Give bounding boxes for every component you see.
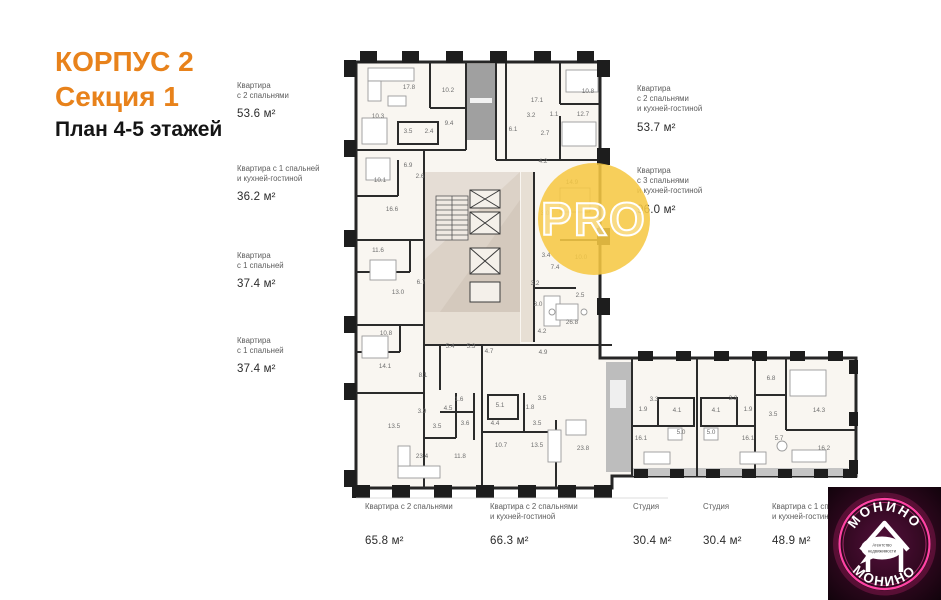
apt-area: 30.4 м²	[703, 535, 742, 547]
room-area-label: 14.1	[379, 363, 392, 370]
column-block	[594, 485, 612, 498]
room-area-label: 4.2	[539, 158, 548, 165]
room-area-label: 6.1	[509, 126, 518, 133]
room-area-label: 6.9	[404, 162, 413, 169]
room-area-label: 1.8	[526, 404, 535, 411]
room-area-label: 4.2	[538, 328, 547, 335]
apt-area: 48.9 м²	[772, 535, 811, 547]
room-area-label: 2.6	[416, 173, 425, 180]
apt-label-left-1: Квартира с 2 спальнями 53.6 м²	[237, 81, 345, 101]
apt-area: 53.6 м²	[237, 108, 276, 120]
column-block	[638, 351, 653, 361]
column-block	[434, 485, 452, 498]
room-area-label: 6.7	[417, 279, 426, 286]
room-area-label: 6.8	[767, 375, 776, 382]
column-block	[849, 360, 858, 374]
room-area-label: 3.4	[542, 252, 551, 259]
room-area-label: 2.4	[425, 128, 434, 135]
room-area-label: 26.8	[566, 319, 579, 326]
column-block	[714, 351, 729, 361]
section-title: Секция 1	[55, 79, 222, 114]
column-block	[360, 51, 377, 63]
column-block	[790, 351, 805, 361]
column-block	[752, 351, 767, 361]
room-area-label: 3.5	[533, 420, 542, 427]
apt-area: 36.2 м²	[237, 191, 276, 203]
apt-label-left-3: Квартира с 1 спальней 37.4 м²	[237, 251, 345, 271]
apt-area: 37.4 м²	[237, 363, 276, 375]
room-area-label: 5.3	[467, 343, 476, 350]
room-area-label: 4.7	[485, 348, 494, 355]
room-area-label: 10.7	[495, 442, 508, 449]
room-area-label: 13.0	[392, 289, 405, 296]
column-block	[344, 230, 356, 247]
room-area-label: 1.9	[639, 406, 648, 413]
room-area-label: 14.3	[813, 407, 826, 414]
column-block	[392, 485, 410, 498]
room-area-label: 17.8	[403, 84, 416, 91]
column-block	[849, 412, 858, 426]
column-block	[742, 469, 756, 478]
room-area-label: 3.6	[461, 420, 470, 427]
room-area-label: 3.5	[769, 411, 778, 418]
apt-name: Квартира с 2 спальнями	[237, 81, 345, 101]
column-block	[849, 460, 858, 474]
room-area-label: 4.9	[539, 349, 548, 356]
room-area-label: 5.0	[677, 429, 686, 436]
room-area-label: 11.6	[372, 247, 384, 254]
column-block	[597, 148, 610, 165]
room-area-label: 9.4	[445, 120, 454, 127]
room-area-label: 10.2	[442, 87, 455, 94]
room-area-label: 7.4	[551, 264, 560, 271]
column-block	[402, 51, 419, 63]
floor-plan-page: КОРПУС 2 Секция 1 План 4-5 этажей Кварти…	[0, 0, 941, 600]
column-block	[706, 469, 720, 478]
room-area-label: 1.1	[550, 111, 559, 118]
monino-logo: МОНИНО МОНИНО Агентство недвижимости	[828, 487, 941, 600]
room-area-label: 16.1	[742, 435, 755, 442]
room-area-label: 16.1	[635, 435, 648, 442]
room-area-label: 23.4	[416, 453, 429, 460]
apt-name: Квартира с 1 спальней	[237, 251, 345, 271]
column-block	[476, 485, 494, 498]
column-block	[558, 485, 576, 498]
pro-watermark-text: PRO	[541, 193, 647, 245]
room-area-label: 5.1	[496, 402, 505, 409]
apt-label-left-4: Квартира с 1 спальней 37.4 м²	[237, 336, 345, 356]
room-area-label: 3.5	[404, 128, 413, 135]
room-area-label: 5.0	[707, 429, 716, 436]
bubble-line2: недвижимости	[868, 549, 897, 554]
room-area-label: 4.1	[673, 407, 682, 414]
column-block	[518, 485, 536, 498]
column-block	[344, 60, 356, 77]
room-area-label: 3.5	[433, 423, 442, 430]
apt-label-bottom-2: Квартира с 2 спальнями и кухней-гостиной…	[490, 502, 610, 522]
room-area-label: 4.1	[712, 407, 721, 414]
room-area-label: 12.7	[577, 111, 590, 118]
room-area-label: 11.8	[454, 453, 466, 460]
room-area-label: 3.9	[418, 408, 427, 415]
room-area-label: 13.5	[388, 423, 401, 430]
column-block	[778, 469, 792, 478]
column-block	[344, 316, 356, 333]
room-area-label: 16.6	[386, 206, 399, 213]
column-block	[670, 469, 684, 478]
room-area-label: 16.2	[818, 445, 831, 452]
room-area-label: 4.5	[444, 405, 453, 412]
room-area-label: 8.1	[419, 372, 428, 379]
pro-watermark: PRO	[538, 163, 650, 275]
room-area-label: 10.8	[380, 330, 393, 337]
column-block	[828, 351, 843, 361]
column-block	[534, 51, 551, 63]
column-block	[676, 351, 691, 361]
room-area-label: 10.3	[372, 113, 385, 120]
room-area-label: 13.5	[531, 442, 544, 449]
room-area-label: 3.2	[531, 280, 540, 287]
floors-subtitle: План 4-5 этажей	[55, 116, 222, 144]
apt-label-left-2: Квартира с 1 спальней и кухней-гостиной …	[237, 164, 345, 184]
room-area-label: 3.0	[534, 301, 543, 308]
apt-name: Квартира с 2 спальнями и кухней-гостиной	[490, 502, 610, 522]
column-block	[490, 51, 507, 63]
title-block: КОРПУС 2 Секция 1 План 4-5 этажей	[55, 44, 222, 144]
room-area-label: 1.9	[744, 406, 753, 413]
room-area-label: 23.8	[577, 445, 590, 452]
room-area-label: 5.4	[446, 343, 455, 350]
room-area-label: 17.1	[531, 97, 544, 104]
column-block	[634, 469, 648, 478]
column-block	[446, 51, 463, 63]
apt-area: 30.4 м²	[633, 535, 672, 547]
building-title: КОРПУС 2	[55, 44, 222, 79]
room-area-label: 10.8	[582, 88, 595, 95]
floor-plan: 17.810.210.33.52.49.417.110.83.21.112.76…	[340, 50, 870, 505]
column-block	[597, 60, 610, 77]
column-block	[597, 298, 610, 315]
room-area-label: 2.5	[576, 292, 585, 299]
room-area-label: 3.3	[650, 396, 659, 403]
room-area-label: 1.6	[455, 396, 464, 403]
room-area-label: 3.2	[527, 112, 536, 119]
room-area-label: 10.1	[374, 177, 387, 184]
apt-name: Квартира с 1 спальней и кухней-гостиной	[237, 164, 345, 184]
room-area-label: 2.7	[541, 130, 550, 137]
stairs	[436, 196, 468, 240]
room-area-label: 3.3	[729, 395, 738, 402]
column-block	[344, 140, 356, 157]
apt-name: Квартира с 1 спальней	[237, 336, 345, 356]
room-area-label: 5.7	[775, 435, 784, 442]
apt-area: 37.4 м²	[237, 278, 276, 290]
column-block	[577, 51, 594, 63]
apt-area: 66.3 м²	[490, 535, 529, 547]
apt-area: 65.8 м²	[365, 535, 404, 547]
column-block	[344, 383, 356, 400]
room-area-label: 3.5	[538, 395, 547, 402]
bubble-line1: Агентство	[872, 543, 892, 548]
room-area-label: 4.4	[491, 420, 500, 427]
column-block	[814, 469, 828, 478]
column-block	[344, 470, 356, 487]
